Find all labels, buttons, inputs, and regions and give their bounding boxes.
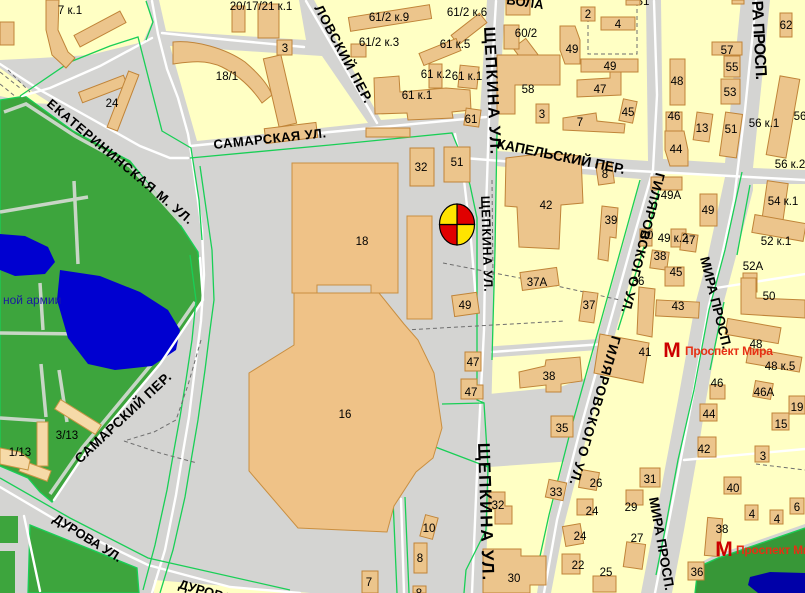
svg-text:55: 55	[726, 62, 739, 74]
svg-text:61/2 к.9: 61/2 к.9	[369, 12, 409, 24]
svg-text:46: 46	[668, 111, 681, 123]
svg-text:3: 3	[539, 109, 545, 121]
svg-text:49: 49	[566, 44, 579, 56]
svg-text:6: 6	[794, 502, 800, 514]
svg-text:8: 8	[417, 553, 423, 565]
svg-text:20/17/21 к.1: 20/17/21 к.1	[230, 1, 293, 13]
svg-text:37А: 37А	[527, 277, 548, 289]
svg-text:61 к.1: 61 к.1	[402, 90, 433, 102]
svg-text:61 к.5: 61 к.5	[440, 39, 471, 51]
svg-text:52 к.1: 52 к.1	[761, 236, 792, 248]
svg-text:44: 44	[703, 409, 716, 421]
svg-text:49: 49	[604, 61, 617, 73]
svg-text:61: 61	[465, 114, 478, 126]
svg-text:61 к.2: 61 к.2	[421, 69, 452, 81]
svg-text:40: 40	[727, 483, 740, 495]
svg-text:35: 35	[556, 423, 569, 435]
svg-text:4: 4	[774, 514, 781, 526]
svg-text:33: 33	[550, 487, 563, 499]
svg-text:18/1: 18/1	[216, 71, 238, 83]
svg-text:3/13: 3/13	[56, 430, 78, 442]
svg-text:38: 38	[543, 371, 556, 383]
svg-text:45: 45	[622, 107, 635, 119]
svg-text:51: 51	[451, 157, 464, 169]
svg-text:46A: 46A	[754, 387, 775, 399]
svg-text:4: 4	[749, 509, 756, 521]
svg-text:М: М	[663, 339, 681, 362]
svg-text:М: М	[715, 538, 733, 561]
svg-text:36: 36	[691, 567, 704, 579]
svg-text:8: 8	[416, 588, 422, 593]
svg-text:4: 4	[615, 19, 622, 31]
svg-text:46: 46	[711, 378, 724, 390]
svg-text:27: 27	[631, 533, 644, 545]
svg-text:26: 26	[590, 478, 603, 490]
svg-text:43: 43	[672, 301, 685, 313]
svg-text:24: 24	[106, 98, 119, 110]
svg-text:38: 38	[654, 251, 667, 263]
svg-text:42: 42	[698, 444, 711, 456]
svg-text:29: 29	[625, 502, 638, 514]
svg-text:3: 3	[282, 43, 288, 55]
svg-text:24: 24	[574, 531, 587, 543]
svg-text:24: 24	[586, 506, 599, 518]
svg-text:30: 30	[508, 573, 521, 585]
svg-text:Проспект Мира: Проспект Мира	[685, 344, 773, 358]
svg-text:25: 25	[600, 567, 613, 579]
svg-text:16: 16	[339, 409, 352, 421]
svg-text:54 к.1: 54 к.1	[768, 196, 799, 208]
svg-text:61/2 к.6: 61/2 к.6	[447, 7, 487, 19]
svg-text:53: 53	[724, 87, 737, 99]
svg-text:18: 18	[356, 236, 369, 248]
svg-text:42: 42	[540, 200, 553, 212]
svg-text:47: 47	[465, 387, 478, 399]
svg-text:37: 37	[583, 300, 596, 312]
svg-text:60/2: 60/2	[515, 28, 537, 40]
svg-text:47: 47	[683, 235, 696, 247]
svg-text:58: 58	[522, 84, 535, 96]
svg-text:51: 51	[725, 124, 738, 136]
svg-text:49: 49	[459, 300, 472, 312]
svg-text:50: 50	[763, 291, 776, 303]
svg-text:47: 47	[467, 357, 480, 369]
svg-text:44: 44	[670, 144, 683, 156]
svg-text:32: 32	[415, 162, 428, 174]
svg-text:7: 7	[577, 117, 583, 129]
svg-text:38: 38	[716, 524, 729, 536]
svg-text:3: 3	[760, 451, 766, 463]
svg-text:ной армии: ной армии	[3, 293, 61, 307]
svg-text:49: 49	[702, 205, 715, 217]
svg-text:61/2 к.3: 61/2 к.3	[359, 37, 399, 49]
svg-text:48 к.5: 48 к.5	[765, 361, 796, 373]
svg-text:31: 31	[644, 474, 657, 486]
svg-text:Проспект Мира: Проспект Мира	[736, 543, 805, 557]
svg-text:2: 2	[585, 9, 591, 21]
svg-text:52A: 52A	[743, 261, 764, 273]
svg-text:56: 56	[794, 111, 805, 123]
svg-text:10: 10	[423, 523, 436, 535]
svg-text:62: 62	[780, 20, 793, 32]
svg-text:7: 7	[366, 577, 372, 589]
svg-text:61 к.1: 61 к.1	[452, 71, 483, 83]
svg-text:19: 19	[791, 402, 804, 414]
svg-text:48: 48	[671, 76, 684, 88]
svg-text:39: 39	[605, 215, 618, 227]
svg-text:56 к.1: 56 к.1	[749, 118, 780, 130]
svg-text:7 к.1: 7 к.1	[58, 5, 82, 17]
svg-text:57: 57	[721, 45, 734, 57]
svg-text:47: 47	[594, 84, 607, 96]
svg-text:22: 22	[572, 560, 585, 572]
svg-text:1/13: 1/13	[9, 447, 31, 459]
svg-text:41: 41	[639, 347, 652, 359]
svg-text:56 к.2: 56 к.2	[775, 159, 805, 171]
svg-text:15: 15	[775, 419, 788, 431]
svg-text:45: 45	[670, 267, 683, 279]
svg-text:13: 13	[696, 123, 709, 135]
